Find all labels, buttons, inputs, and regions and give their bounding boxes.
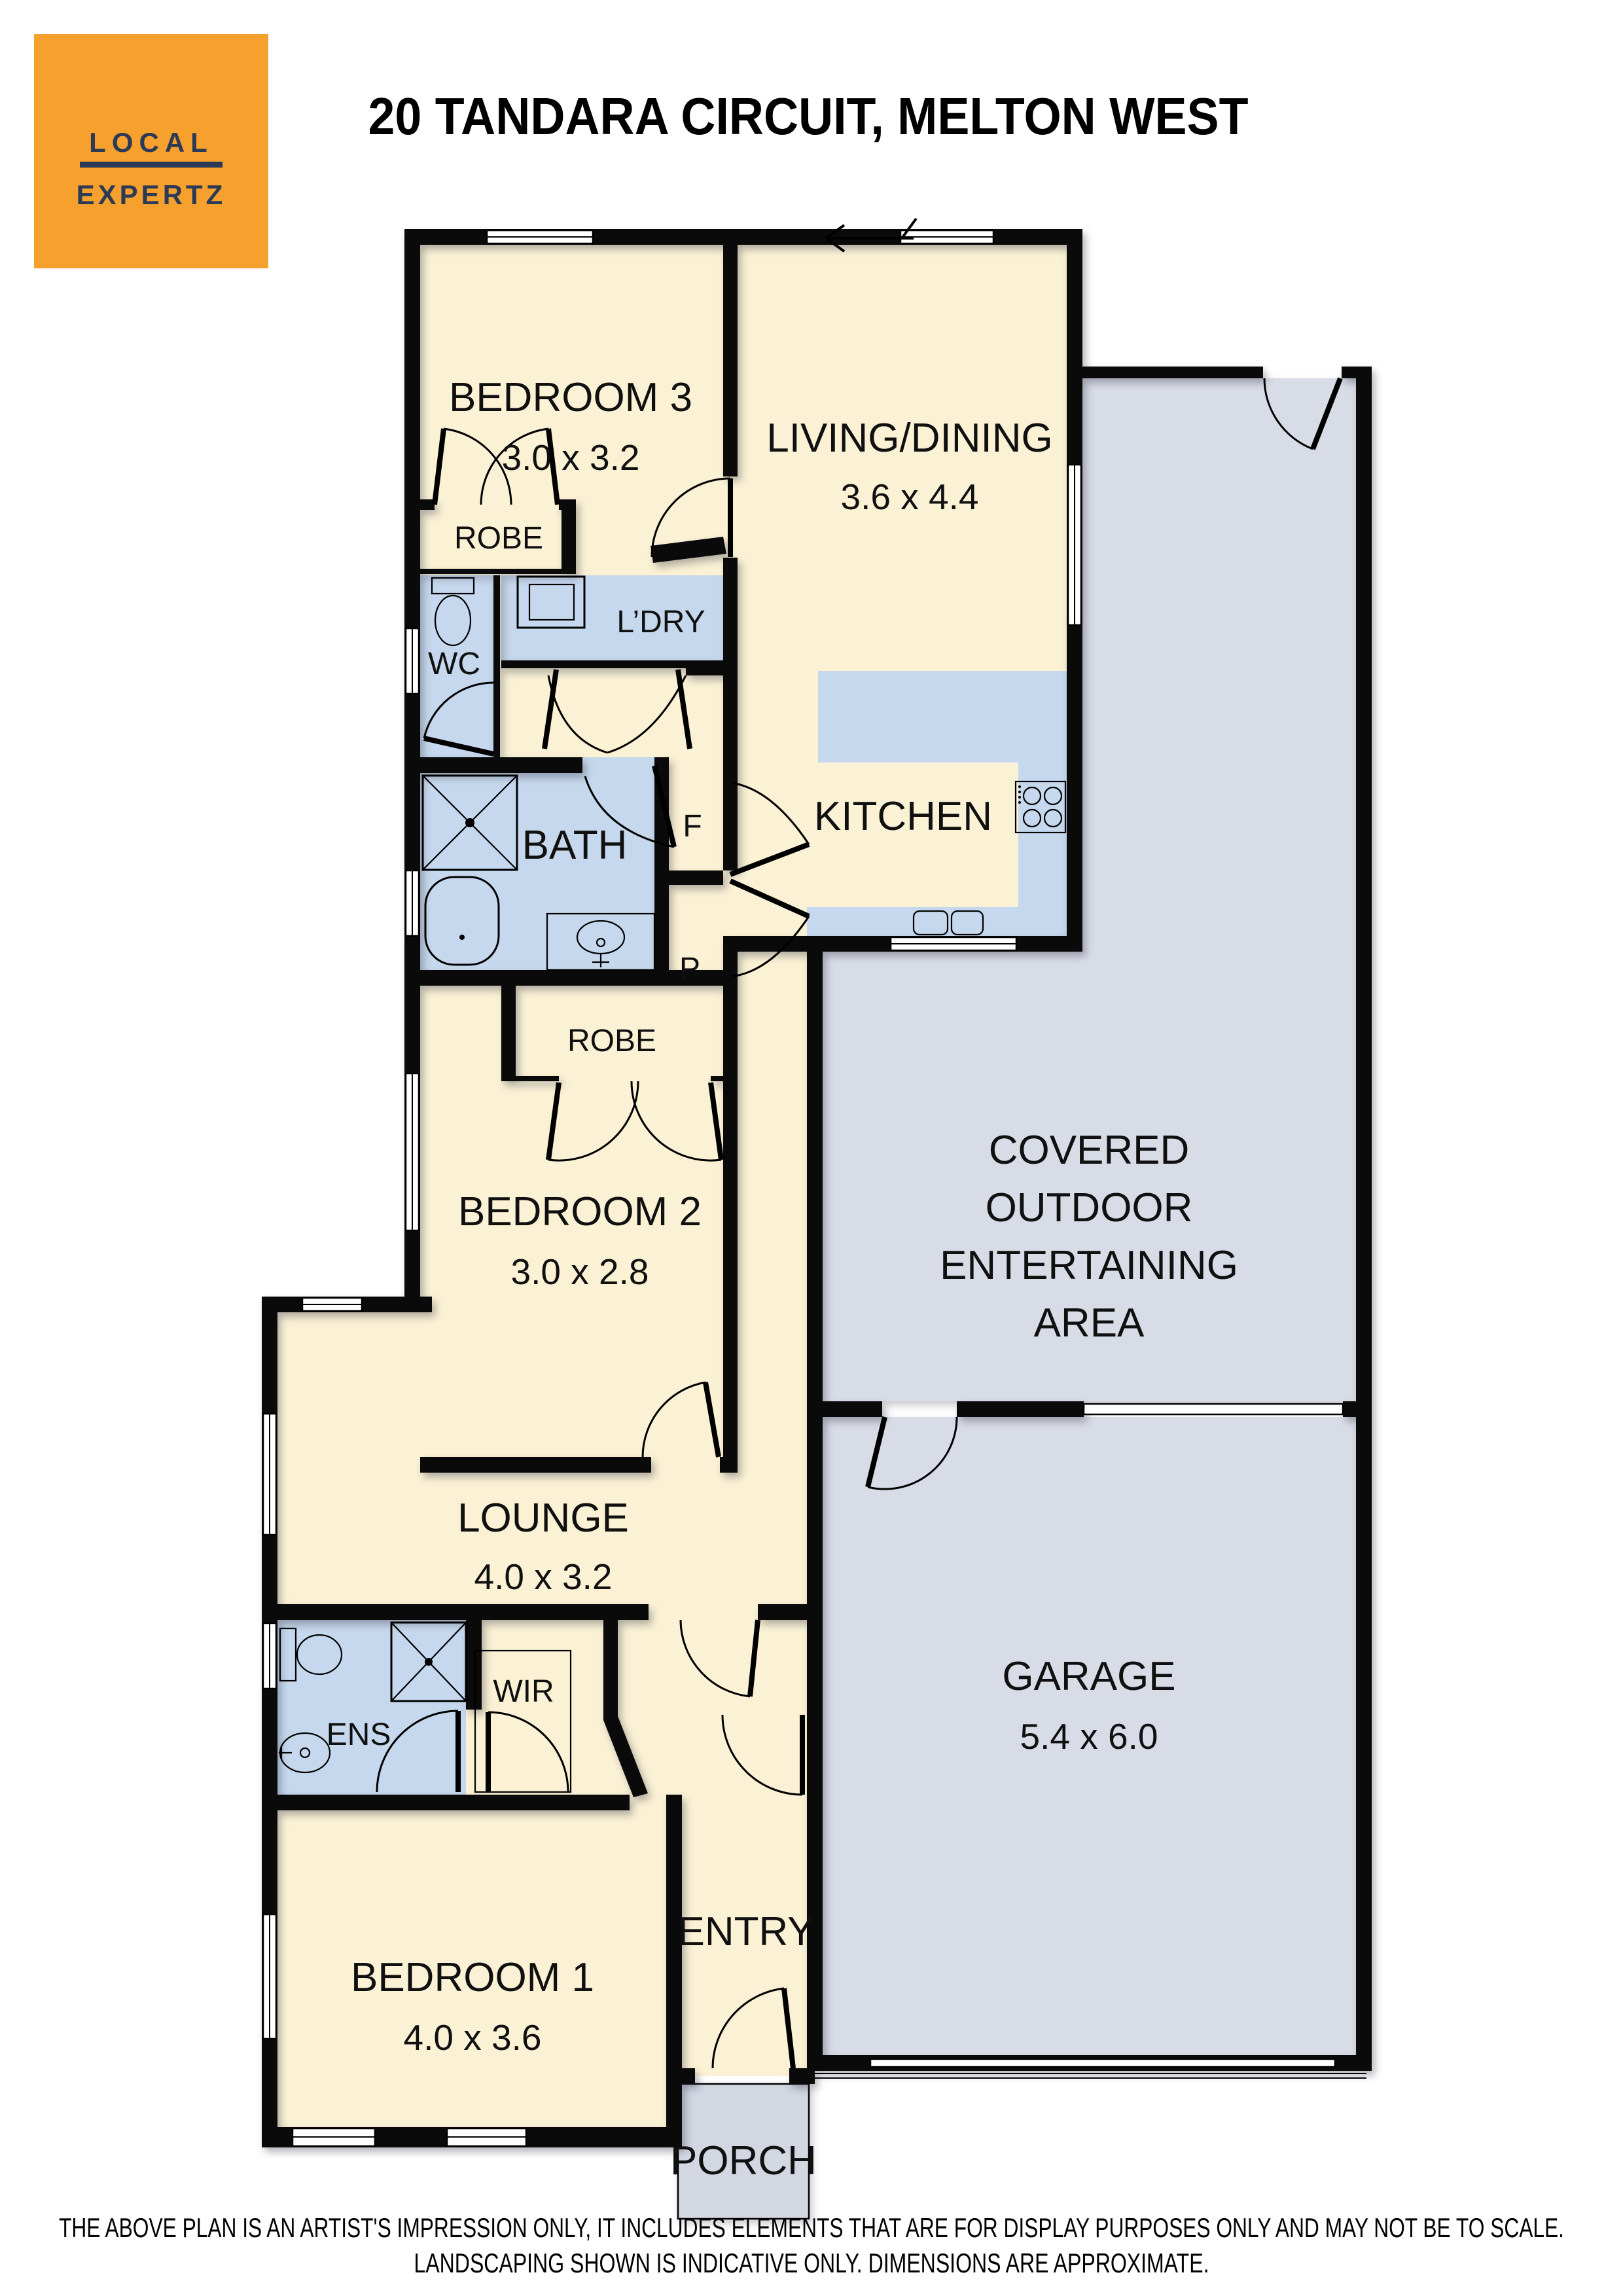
logo-divider — [80, 162, 223, 168]
room-label-entry: ENTRY — [677, 1909, 814, 1954]
room-dims-bedroom2: 3.0 x 2.8 — [511, 1251, 649, 1292]
room-dims-bedroom1: 4.0 x 3.6 — [404, 2017, 542, 2058]
floor-plan-page: LOCAL EXPERTZ 20 TANDARA CIRCUIT, MELTON… — [0, 0, 1623, 2296]
disclaimer-line2: LANDSCAPING SHOWN IS INDICATIVE ONLY. DI… — [414, 2248, 1209, 2278]
room-dims-lounge: 4.0 x 3.2 — [474, 1556, 613, 1597]
room-dims-bedroom3: 3.0 x 3.2 — [502, 437, 640, 478]
room-label-outdoor-4: AREA — [1034, 1300, 1145, 1346]
room-label-laundry: L’DRY — [616, 605, 705, 639]
room-label-bath: BATH — [522, 823, 628, 868]
room-label-pantry: P — [679, 952, 700, 986]
ensuite-floor — [277, 1620, 466, 1795]
room-label-outdoor-1: COVERED — [989, 1128, 1190, 1173]
room-label-outdoor-2: OUTDOOR — [986, 1185, 1193, 1230]
logo-line1: LOCAL — [89, 127, 213, 158]
room-dims-living: 3.6 x 4.4 — [841, 476, 979, 517]
room-label-outdoor-3: ENTERTAINING — [940, 1243, 1238, 1288]
room-label-kitchen: KITCHEN — [814, 794, 992, 839]
room-label-ensuite: ENS — [327, 1717, 391, 1752]
garage-door — [870, 2059, 1335, 2067]
room-label-lounge: LOUNGE — [457, 1496, 629, 1541]
room-label-living: LIVING/DINING — [766, 416, 1053, 461]
room-label-robe-bed2: ROBE — [567, 1024, 656, 1058]
room-label-garage: GARAGE — [1002, 1654, 1175, 1699]
room-dims-garage: 5.4 x 6.0 — [1020, 1716, 1158, 1757]
room-label-bedroom2: BEDROOM 2 — [458, 1189, 702, 1234]
room-label-robe-bed3: ROBE — [454, 521, 543, 556]
room-label-wardrobe: WIR — [493, 1674, 554, 1709]
room-label-porch: PORCH — [670, 2138, 817, 2183]
page-title: 20 TANDARA CIRCUIT, MELTON WEST — [368, 87, 1249, 145]
room-label-fridge: F — [683, 809, 702, 844]
logo: LOCAL EXPERTZ — [34, 34, 268, 268]
logo-line2: EXPERTZ — [77, 179, 226, 210]
room-label-bedroom3: BEDROOM 3 — [449, 375, 692, 420]
room-label-wc: WC — [428, 647, 480, 681]
room-label-bedroom1: BEDROOM 1 — [351, 1955, 594, 2000]
disclaimer-line1: THE ABOVE PLAN IS AN ARTIST'S IMPRESSION… — [59, 2212, 1564, 2243]
footer-disclaimer: THE ABOVE PLAN IS AN ARTIST'S IMPRESSION… — [59, 2212, 1564, 2278]
window — [1084, 1404, 1343, 1414]
